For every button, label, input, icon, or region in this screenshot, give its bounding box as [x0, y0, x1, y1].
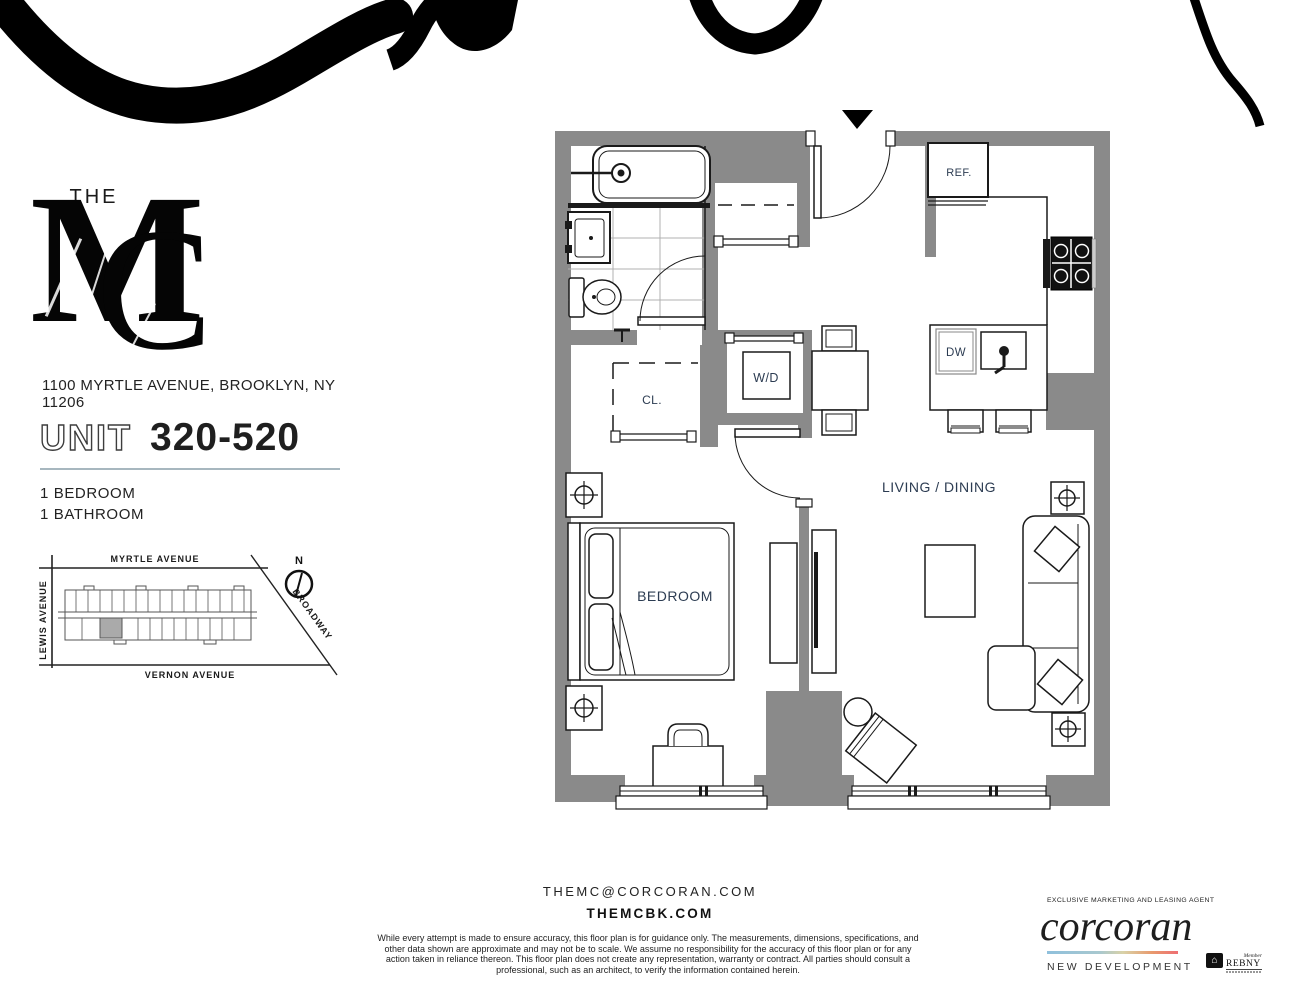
column-marker — [1051, 482, 1084, 514]
rebny-house-icon: ⌂ — [1206, 953, 1223, 968]
floor-plan: REF. DW — [550, 125, 1115, 810]
unit-headline: UNIT 320-520 — [38, 410, 368, 462]
rebny-name-label: REBNY — [1226, 959, 1262, 970]
new-development-label: NEW DEVELOPMENT — [1047, 961, 1193, 973]
dw-label: DW — [946, 347, 966, 359]
dresser — [770, 543, 797, 663]
dining-table — [812, 326, 868, 435]
column-marker — [1052, 713, 1085, 746]
corcoran-gradient-bar — [1047, 951, 1178, 954]
bathtub — [571, 146, 710, 203]
bedroom-label: BEDROOM — [637, 588, 713, 604]
partition-wall — [799, 502, 809, 692]
tv-console — [812, 530, 836, 673]
bedroom-door — [735, 429, 812, 507]
building-footprint — [58, 586, 257, 644]
contact-website: THEMCBK.COM — [330, 906, 970, 921]
sofa — [988, 516, 1089, 712]
building-address: 1100 MYRTLE AVENUE, BROOKLYN, NY 11206 — [42, 377, 362, 411]
tub-enclosure-line — [568, 203, 710, 208]
living-dining-label: LIVING / DINING — [882, 479, 996, 495]
window — [616, 786, 767, 809]
street-label-vernon: VERNON AVENUE — [145, 670, 236, 680]
column-marker — [566, 473, 602, 517]
unit-bathrooms: 1 BATHROOM — [40, 504, 144, 526]
street-label-lewis: LEWIS AVENUE — [38, 580, 48, 660]
rebny-fine-print — [1226, 971, 1262, 973]
toilet — [569, 278, 621, 317]
agent-tagline: EXCLUSIVE MARKETING AND LEASING AGENT — [1047, 897, 1214, 904]
stove — [1043, 237, 1096, 290]
location-map: MYRTLE AVENUE LEWIS AVENUE VERNON AVENUE… — [38, 548, 348, 688]
disclaimer-text: While every attempt is made to ensure ac… — [372, 933, 924, 975]
brand-monogram-c: C — [96, 202, 213, 377]
vanity-sink — [565, 212, 610, 263]
ref-label: REF. — [946, 167, 971, 179]
bar-stools — [948, 410, 1031, 433]
contact-email: THEMC@CORCORAN.COM — [330, 884, 970, 899]
brush-stroke-center — [697, 0, 816, 44]
divider-line — [40, 468, 340, 470]
decorative-brush-strokes — [0, 0, 1294, 140]
coffee-table — [925, 545, 975, 617]
kitchen-sink — [981, 332, 1026, 373]
brush-stroke-right — [1192, 0, 1260, 126]
floorplan-flyer: THE M C 1100 MYRTLE AVENUE, BROOKLYN, NY… — [0, 0, 1294, 1000]
unit-number: 320-520 — [150, 416, 300, 459]
brush-blob-left — [428, 0, 520, 51]
brush-stroke-left — [0, 0, 395, 106]
window — [848, 786, 1050, 809]
street-label-myrtle: MYRTLE AVENUE — [110, 554, 199, 564]
street-label-broadway: BROADWAY — [291, 587, 335, 642]
column-marker — [566, 686, 602, 730]
side-table — [844, 698, 872, 726]
highlighted-unit-cell — [100, 618, 122, 638]
corcoran-logo: corcoran — [1040, 906, 1192, 948]
rebny-logo: ⌂ Member REBNY — [1206, 953, 1262, 973]
compass-north-label: N — [295, 555, 303, 567]
desk-chair — [668, 724, 708, 746]
unit-bedrooms: 1 BEDROOM — [40, 483, 135, 505]
desk — [653, 746, 723, 787]
unit-label: UNIT — [40, 417, 132, 458]
coat-closet-recess — [715, 183, 797, 247]
kitchen-counter — [937, 197, 1047, 325]
cl-label: CL. — [642, 393, 662, 407]
entry-door — [806, 131, 895, 218]
wd-label: W/D — [753, 371, 779, 385]
